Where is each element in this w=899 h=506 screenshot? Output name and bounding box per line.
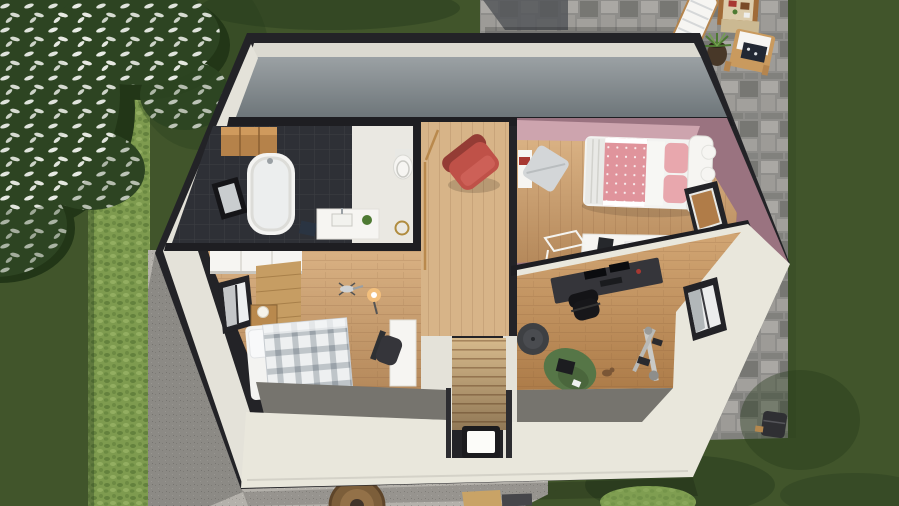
bathroom-shelf	[221, 127, 277, 156]
patio-grass-edge-shadow	[788, 0, 796, 438]
patio-wall-shadow	[485, 27, 700, 33]
scene-canvas	[0, 0, 899, 506]
bathroom	[172, 126, 413, 243]
vanity-sink	[317, 208, 379, 239]
toilet	[394, 149, 413, 179]
skylight	[462, 426, 500, 458]
top-wall-cream	[250, 43, 701, 57]
house-cutaway	[155, 33, 790, 489]
floorplan-render	[0, 0, 899, 506]
stairwell-trim-right	[506, 390, 512, 458]
garden-bench	[462, 490, 502, 506]
bathtub	[247, 153, 295, 235]
bedroom-window	[218, 275, 254, 334]
roof-cut-band	[232, 57, 727, 117]
stairwell-trim-left	[446, 388, 451, 458]
bathroom-bedroom-wall	[164, 243, 421, 251]
staircase	[452, 338, 506, 430]
table-lamp	[258, 307, 269, 318]
garden-seat-cushion	[502, 493, 532, 506]
ottoman	[517, 323, 549, 355]
